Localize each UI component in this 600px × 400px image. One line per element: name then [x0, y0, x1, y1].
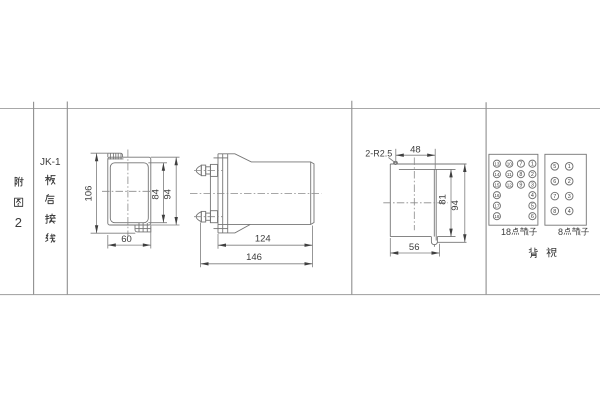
svg-text:6: 6	[553, 179, 556, 185]
svg-text:18: 18	[501, 227, 511, 237]
svg-text:2: 2	[15, 215, 22, 230]
svg-text:15: 15	[494, 182, 500, 187]
svg-text:81: 81	[438, 194, 449, 205]
svg-text:16: 16	[494, 193, 500, 198]
svg-text:2: 2	[568, 179, 571, 185]
svg-text:1: 1	[531, 162, 534, 168]
svg-text:18: 18	[494, 214, 500, 219]
svg-text:7: 7	[519, 162, 522, 168]
svg-text:4: 4	[568, 209, 571, 215]
svg-text:13: 13	[494, 161, 500, 166]
svg-text:8: 8	[558, 227, 563, 237]
svg-text:84: 84	[151, 189, 162, 200]
svg-text:8: 8	[519, 172, 522, 178]
svg-text:48: 48	[410, 144, 421, 155]
svg-text:1: 1	[568, 164, 571, 170]
svg-text:5: 5	[531, 204, 534, 210]
svg-text:94: 94	[163, 189, 174, 200]
svg-text:56: 56	[409, 242, 420, 253]
svg-text:14: 14	[494, 172, 500, 177]
svg-text:5: 5	[553, 164, 556, 170]
svg-text:124: 124	[255, 234, 271, 245]
svg-text:8: 8	[553, 209, 556, 215]
svg-text:146: 146	[246, 252, 262, 263]
svg-text:106: 106	[84, 186, 95, 202]
svg-text:94: 94	[450, 200, 461, 211]
svg-text:3: 3	[531, 183, 534, 189]
svg-text:7: 7	[553, 194, 556, 200]
svg-text:3: 3	[568, 194, 571, 200]
svg-text:11: 11	[507, 172, 512, 177]
svg-text:4: 4	[531, 193, 534, 199]
svg-text:2: 2	[531, 172, 534, 178]
svg-text:JK-1: JK-1	[40, 157, 61, 168]
svg-text:6: 6	[531, 214, 534, 220]
svg-text:17: 17	[494, 203, 500, 208]
svg-text:60: 60	[121, 234, 132, 245]
svg-text:12: 12	[507, 182, 513, 187]
svg-text:10: 10	[507, 161, 513, 166]
svg-text:2-R2.5: 2-R2.5	[365, 148, 392, 158]
svg-text:9: 9	[519, 183, 522, 189]
